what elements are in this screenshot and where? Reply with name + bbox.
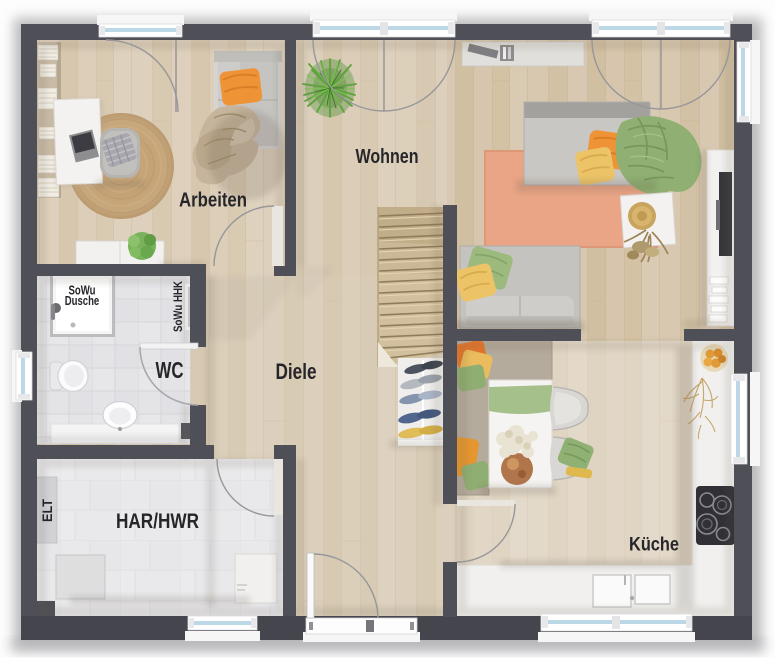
svg-text:ELT: ELT (39, 499, 55, 522)
svg-text:Arbeiten: Arbeiten (179, 190, 247, 212)
svg-text:SoWu HHK: SoWu HHK (173, 280, 185, 332)
svg-text:Wohnen: Wohnen (356, 146, 419, 168)
svg-text:WC: WC (156, 357, 184, 383)
svg-text:Küche: Küche (629, 535, 679, 556)
svg-text:Diele: Diele (276, 359, 317, 384)
svg-text:HAR/HWR: HAR/HWR (116, 510, 199, 533)
svg-text:Dusche: Dusche (65, 294, 100, 308)
